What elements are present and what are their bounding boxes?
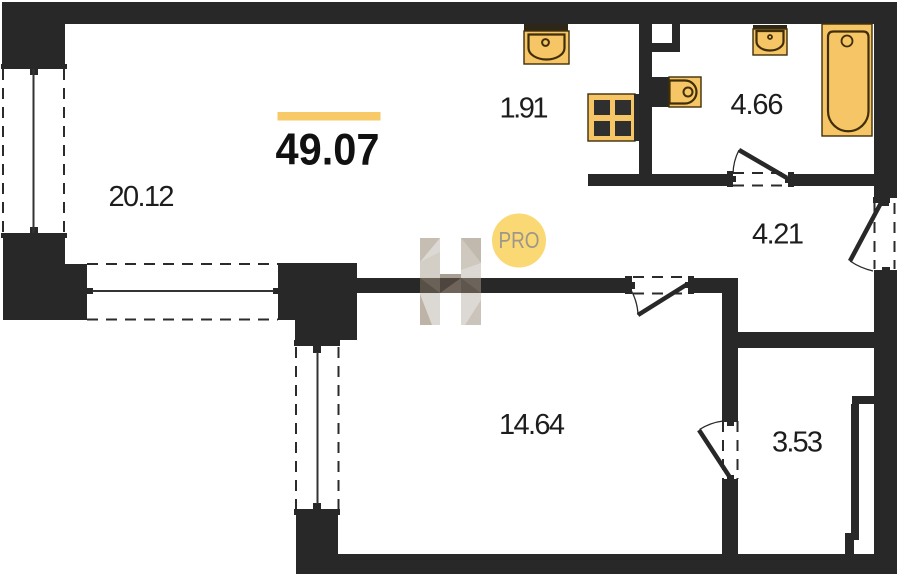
svg-text:49.07: 49.07 (276, 126, 380, 175)
svg-text:PRO: PRO (499, 227, 540, 253)
svg-text:4.66: 4.66 (731, 89, 784, 121)
svg-text:14.64: 14.64 (499, 409, 565, 441)
svg-text:3.53: 3.53 (772, 427, 823, 459)
svg-text:4.21: 4.21 (752, 219, 804, 251)
svg-text:1.91: 1.91 (500, 93, 549, 125)
svg-text:20.12: 20.12 (109, 181, 175, 213)
